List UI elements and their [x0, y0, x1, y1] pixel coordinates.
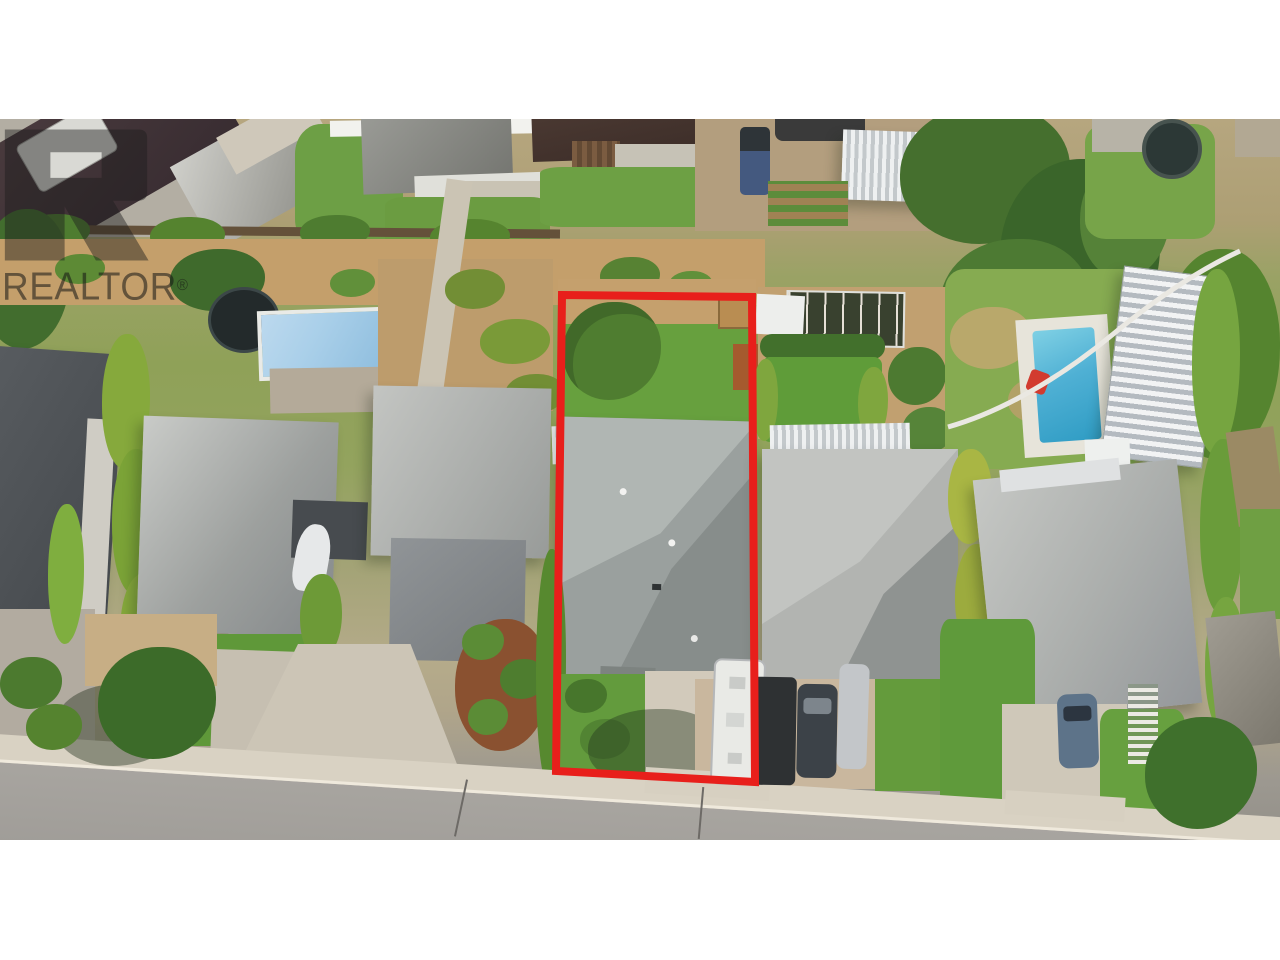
rv-roof-vent-1 [729, 677, 745, 690]
subject-house-roof [554, 416, 757, 693]
rv-roof-vent-3 [728, 753, 742, 764]
listing-photo-page: REALTOR® [0, 0, 1280, 960]
far-right-grass [1240, 509, 1280, 619]
blue-gray-car [1057, 693, 1100, 768]
blue-truck [740, 127, 770, 195]
realtor-watermark: REALTOR® [2, 129, 172, 308]
garden-hedge-row [760, 334, 885, 359]
silver-car [836, 664, 870, 770]
realtor-block-r-logo [2, 129, 150, 261]
aerial-photo: REALTOR® [0, 119, 1280, 840]
rv-roof-vent-2 [726, 713, 744, 728]
dark-truck [751, 677, 797, 786]
roof-vent-2 [668, 539, 675, 546]
trampoline-topright [1142, 119, 1202, 179]
house4-roof [762, 449, 958, 699]
car-windshield [1063, 706, 1092, 722]
tree-bottom-right [1145, 717, 1257, 829]
suv-windshield [803, 698, 831, 714]
garden-beds [768, 181, 848, 226]
house3-roof-upper [371, 385, 552, 558]
lot-garden-box [718, 297, 756, 329]
topright-road-corner [1235, 119, 1280, 157]
registered-symbol: ® [177, 277, 189, 295]
roof-vent-3 [652, 584, 661, 590]
white-canopy [755, 294, 805, 336]
dark-suv [796, 684, 838, 779]
realtor-watermark-text: REALTOR® [2, 265, 172, 309]
